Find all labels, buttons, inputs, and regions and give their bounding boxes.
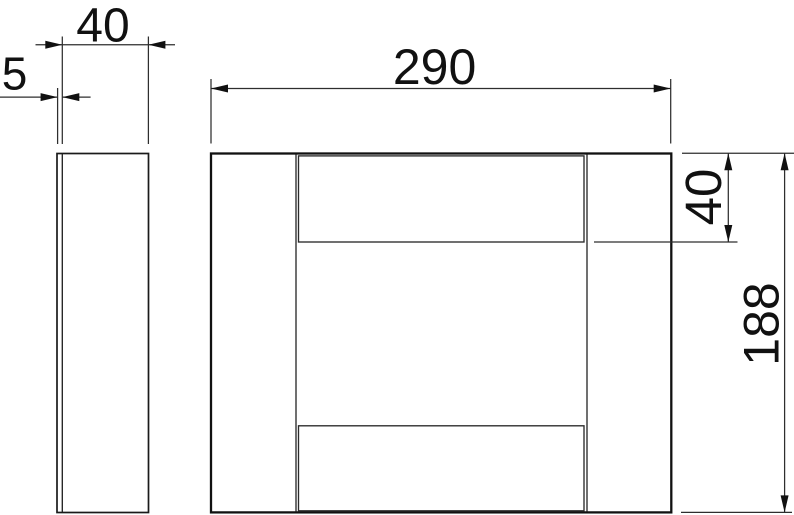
svg-text:40: 40 [675,169,732,226]
svg-text:5: 5 [2,48,28,100]
svg-text:188: 188 [734,282,790,365]
svg-text:290: 290 [393,39,476,95]
svg-text:40: 40 [76,0,129,53]
